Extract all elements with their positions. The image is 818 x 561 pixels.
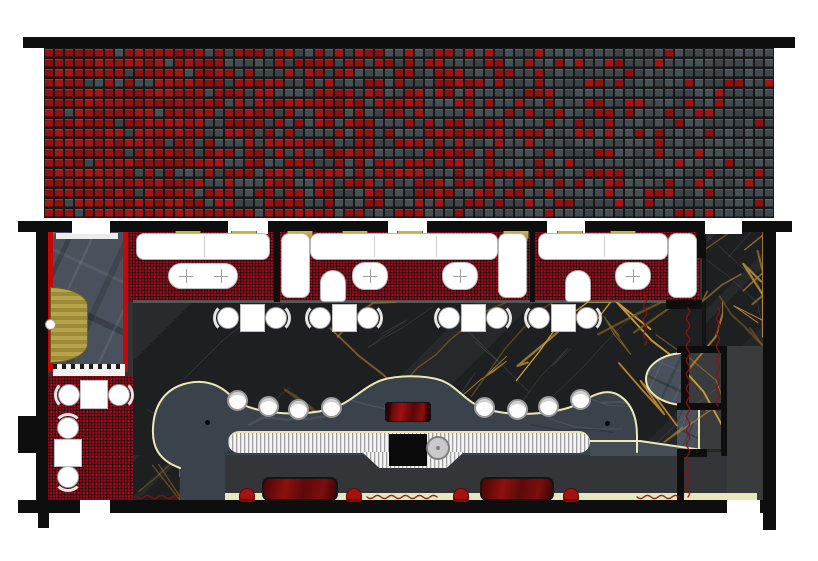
mosaic-tile (405, 79, 413, 87)
mosaic-tile (185, 79, 193, 87)
mosaic-tile (235, 119, 243, 127)
mosaic-tile (385, 49, 393, 57)
mosaic-tile (575, 139, 583, 147)
mosaic-tile (325, 159, 333, 167)
mosaic-tile (65, 109, 73, 117)
mosaic-tile (625, 139, 633, 147)
mosaic-tile (155, 129, 163, 137)
mosaic-tile (635, 159, 643, 167)
mosaic-tile (305, 159, 313, 167)
mosaic-tile (145, 109, 153, 117)
mosaic-tile (405, 179, 413, 187)
mosaic-tile (275, 59, 283, 67)
mosaic-tile (745, 209, 753, 217)
mosaic-tile (385, 119, 393, 127)
dining-chair (486, 307, 508, 329)
mosaic-tile (65, 209, 73, 217)
mosaic-tile (135, 59, 143, 67)
mosaic-tile (525, 119, 533, 127)
dining-table (332, 304, 357, 332)
mosaic-tile (635, 69, 643, 77)
mosaic-tile (505, 189, 513, 197)
mosaic-tile (645, 119, 653, 127)
mosaic-tile (635, 49, 643, 57)
mosaic-tile (545, 199, 553, 207)
bottom-wall (18, 500, 763, 513)
mosaic-tile (695, 59, 703, 67)
mosaic-tile (445, 139, 453, 147)
mosaic-tile (105, 159, 113, 167)
lounge-bench (480, 477, 554, 501)
dining-chair (528, 307, 550, 329)
dining-table (240, 304, 265, 332)
mosaic-tile (605, 109, 613, 117)
mosaic-tile (195, 139, 203, 147)
mosaic-tile (725, 209, 733, 217)
mosaic-tile (285, 89, 293, 97)
door-opening-top (705, 219, 742, 234)
mosaic-tile (315, 49, 323, 57)
mosaic-tile (345, 69, 353, 77)
mosaic-tile (175, 49, 183, 57)
mosaic-tile (665, 139, 673, 147)
mosaic-tile (555, 59, 563, 67)
mosaic-tile (645, 129, 653, 137)
mosaic-tile (505, 199, 513, 207)
mosaic-tile (275, 49, 283, 57)
mosaic-tile (765, 99, 773, 107)
mosaic-tile (125, 159, 133, 167)
mosaic-tile (465, 189, 473, 197)
mosaic-tile (515, 169, 523, 177)
mosaic-tile (565, 139, 573, 147)
mosaic-tile (615, 69, 623, 77)
mosaic-tile (595, 179, 603, 187)
lounge-bench (262, 477, 338, 501)
mosaic-tile (445, 109, 453, 117)
mosaic-tile (685, 149, 693, 157)
mosaic-tile (665, 129, 673, 137)
mosaic-tile (485, 179, 493, 187)
mosaic-tile (715, 169, 723, 177)
mosaic-tile (155, 149, 163, 157)
mosaic-tile (615, 129, 623, 137)
mosaic-tile (615, 109, 623, 117)
mosaic-tile (235, 89, 243, 97)
mosaic-tile (555, 159, 563, 167)
mosaic-tile (145, 179, 153, 187)
mosaic-tile (245, 89, 253, 97)
mosaic-tile (485, 79, 493, 87)
mosaic-tile (225, 199, 233, 207)
mosaic-tile (255, 139, 263, 147)
mosaic-tile (335, 79, 343, 87)
mosaic-tile (205, 79, 213, 87)
mosaic-tile (515, 209, 523, 217)
mosaic-tile (385, 159, 393, 167)
mosaic-tile (115, 59, 123, 67)
mosaic-tile (185, 109, 193, 117)
mosaic-tile (225, 49, 233, 57)
mosaic-tile (525, 169, 533, 177)
mosaic-tile (605, 79, 613, 87)
mosaic-tile (595, 129, 603, 137)
mosaic-tile (165, 199, 173, 207)
mosaic-tile (765, 49, 773, 57)
mosaic-tile (605, 159, 613, 167)
mosaic-tile (505, 209, 513, 217)
mosaic-tile (385, 189, 393, 197)
mosaic-tile (105, 59, 113, 67)
mosaic-tile (735, 59, 743, 67)
mosaic-tile (555, 149, 563, 157)
mosaic-tile (65, 89, 73, 97)
mosaic-tile (765, 89, 773, 97)
mosaic-tile (465, 119, 473, 127)
mosaic-tile (175, 129, 183, 137)
mosaic-tile (275, 119, 283, 127)
mosaic-tile (685, 199, 693, 207)
mosaic-tile (175, 69, 183, 77)
mosaic-tile (115, 149, 123, 157)
mosaic-tile (45, 139, 53, 147)
mosaic-tile (115, 139, 123, 147)
mosaic-tile (475, 159, 483, 167)
mosaic-tile (345, 149, 353, 157)
mosaic-tile (745, 59, 753, 67)
mosaic-tile (135, 109, 143, 117)
mosaic-tile (425, 89, 433, 97)
mosaic-tile (465, 199, 473, 207)
mosaic-tile (525, 59, 533, 67)
mosaic-tile (95, 109, 103, 117)
mosaic-tile (665, 149, 673, 157)
mosaic-tile (295, 179, 303, 187)
floor-plan (0, 0, 818, 561)
mosaic-tile (505, 159, 513, 167)
mosaic-tile (485, 89, 493, 97)
mosaic-tile (485, 189, 493, 197)
mosaic-tile (515, 119, 523, 127)
mosaic-tile (145, 199, 153, 207)
mosaic-tile (285, 179, 293, 187)
mosaic-tile (685, 139, 693, 147)
mosaic-tile (105, 149, 113, 157)
mosaic-tile (365, 199, 373, 207)
mosaic-tile (45, 159, 53, 167)
mosaic-tile (465, 209, 473, 217)
mosaic-tile (725, 59, 733, 67)
mosaic-tile (375, 179, 383, 187)
mosaic-tile (405, 129, 413, 137)
mosaic-tile (85, 49, 93, 57)
mosaic-tile (245, 49, 253, 57)
mosaic-tile (615, 99, 623, 107)
door-opening-top (72, 219, 110, 234)
mosaic-tile (315, 129, 323, 137)
mosaic-tile (635, 169, 643, 177)
mosaic-tile (735, 199, 743, 207)
mosaic-tile (565, 149, 573, 157)
mosaic-tile (515, 109, 523, 117)
mosaic-tile (285, 149, 293, 157)
mosaic-tile (75, 139, 83, 147)
mosaic-tile (315, 59, 323, 67)
mosaic-tile (595, 99, 603, 107)
mosaic-tile (495, 209, 503, 217)
mosaic-tile (465, 69, 473, 77)
mosaic-tile (435, 79, 443, 87)
mosaic-tile (335, 159, 343, 167)
mosaic-tile (125, 89, 133, 97)
mosaic-tile (285, 99, 293, 107)
mosaic-tile (45, 149, 53, 157)
mosaic-tile (395, 189, 403, 197)
mosaic-tile (245, 209, 253, 217)
mosaic-tile (125, 179, 133, 187)
mosaic-tile (45, 109, 53, 117)
mosaic-tile (725, 89, 733, 97)
mosaic-tile (545, 59, 553, 67)
mosaic-tile (665, 69, 673, 77)
mosaic-tile (435, 119, 443, 127)
mosaic-tile (475, 69, 483, 77)
mosaic-tile (215, 129, 223, 137)
mosaic-tile (185, 49, 193, 57)
mosaic-tile (495, 59, 503, 67)
mosaic-tile (255, 109, 263, 117)
door-opening-bottom (80, 500, 110, 514)
mosaic-tile (615, 179, 623, 187)
mosaic-tile (445, 79, 453, 87)
mosaic-tile (505, 109, 513, 117)
mosaic-tile (655, 119, 663, 127)
mosaic-tile (185, 99, 193, 107)
mosaic-tile (735, 159, 743, 167)
alcove-left-wall (681, 349, 689, 406)
mosaic-tile (575, 49, 583, 57)
mosaic-tile (245, 169, 253, 177)
mosaic-tile (455, 69, 463, 77)
mosaic-tile (595, 189, 603, 197)
alcove-2-floor (700, 410, 721, 449)
mosaic-tile (105, 69, 113, 77)
mosaic-tile (125, 169, 133, 177)
mosaic-tile (395, 49, 403, 57)
mosaic-tile (595, 59, 603, 67)
mosaic-tile (685, 129, 693, 137)
mosaic-tile (535, 209, 543, 217)
mosaic-tile (255, 199, 263, 207)
mosaic-tile (755, 199, 763, 207)
mosaic-tile (115, 49, 123, 57)
mosaic-tile (555, 119, 563, 127)
mosaic-tile (755, 169, 763, 177)
mosaic-tile (105, 129, 113, 137)
mosaic-tile (335, 59, 343, 67)
mosaic-tile (135, 69, 143, 77)
mosaic-tile (535, 119, 543, 127)
mosaic-tile (675, 189, 683, 197)
mosaic-tile (585, 99, 593, 107)
mosaic-tile (125, 109, 133, 117)
mosaic-tile (65, 129, 73, 137)
mosaic-tile (505, 149, 513, 157)
mosaic-tile (715, 49, 723, 57)
mosaic-tile (675, 69, 683, 77)
mosaic-tile (485, 59, 493, 67)
mosaic-tile (185, 189, 193, 197)
mosaic-tile (325, 129, 333, 137)
mosaic-tile (45, 69, 53, 77)
mosaic-tile (55, 209, 63, 217)
mosaic-tile (105, 189, 113, 197)
mosaic-tile (585, 149, 593, 157)
mosaic-tile (195, 209, 203, 217)
mosaic-tile (215, 49, 223, 57)
mosaic-tile (325, 169, 333, 177)
sofa-cushion-divider (204, 236, 205, 257)
mosaic-tile (725, 49, 733, 57)
booth-arch-chair (320, 270, 346, 302)
mosaic-tile (365, 59, 373, 67)
mosaic-tile (345, 209, 353, 217)
mosaic-tile (55, 79, 63, 87)
mosaic-tile (525, 199, 533, 207)
mosaic-tile (205, 109, 213, 117)
mosaic-tile (115, 79, 123, 87)
mosaic-tile (255, 79, 263, 87)
mosaic-tile (175, 199, 183, 207)
mosaic-tile (685, 169, 693, 177)
mosaic-tile (395, 169, 403, 177)
mosaic-tile (715, 179, 723, 187)
mosaic-tile (395, 129, 403, 137)
mosaic-tile (685, 179, 693, 187)
mosaic-tile (195, 109, 203, 117)
mosaic-tile (245, 199, 253, 207)
mosaic-tile (265, 209, 273, 217)
mosaic-tile (575, 89, 583, 97)
mosaic-tile (635, 59, 643, 67)
mosaic-tile (765, 119, 773, 127)
mosaic-tile (545, 159, 553, 167)
mosaic-tile (225, 159, 233, 167)
mosaic-tile (375, 69, 383, 77)
mosaic-tile (255, 209, 263, 217)
mosaic-tile (555, 129, 563, 137)
mosaic-tile (655, 109, 663, 117)
mosaic-tile (505, 99, 513, 107)
mosaic-tile (435, 199, 443, 207)
mosaic-tile (605, 89, 613, 97)
mosaic-tile (235, 139, 243, 147)
mosaic-tile (755, 69, 763, 77)
mosaic-tile (125, 149, 133, 157)
mosaic-tile (745, 169, 753, 177)
mosaic-tile (565, 189, 573, 197)
mosaic-tile (165, 99, 173, 107)
mosaic-tile (545, 119, 553, 127)
mosaic-tile (135, 209, 143, 217)
mosaic-tile (755, 209, 763, 217)
mosaic-tile (45, 199, 53, 207)
mosaic-tile (425, 49, 433, 57)
mosaic-tile (245, 149, 253, 157)
mosaic-tile (465, 89, 473, 97)
mosaic-tile (295, 109, 303, 117)
mosaic-tile (595, 159, 603, 167)
mosaic-tile (145, 49, 153, 57)
mosaic-tile (695, 79, 703, 87)
booth-sofa (310, 233, 498, 260)
mosaic-tile (115, 99, 123, 107)
mosaic-tile (405, 119, 413, 127)
mosaic-tile (555, 49, 563, 57)
mosaic-tile (445, 179, 453, 187)
mosaic-tile (325, 99, 333, 107)
mosaic-tile (55, 199, 63, 207)
mosaic-tile (185, 129, 193, 137)
mosaic-tile (155, 79, 163, 87)
mosaic-tile (45, 119, 53, 127)
mosaic-tile (85, 209, 93, 217)
mosaic-tile (125, 199, 133, 207)
mosaic-tile (575, 59, 583, 67)
mosaic-tile (165, 49, 173, 57)
mosaic-tile (495, 69, 503, 77)
mosaic-tile (175, 99, 183, 107)
mosaic-tile (495, 109, 503, 117)
mosaic-tile (165, 149, 173, 157)
mosaic-tile (435, 49, 443, 57)
mosaic-tile (715, 119, 723, 127)
mosaic-tile (335, 119, 343, 127)
mosaic-tile (365, 169, 373, 177)
mosaic-tile (235, 209, 243, 217)
mosaic-tile (405, 99, 413, 107)
mosaic-tile (385, 129, 393, 137)
mosaic-tile (305, 119, 313, 127)
mosaic-tile (255, 129, 263, 137)
mosaic-tile (425, 179, 433, 187)
mosaic-tile (165, 189, 173, 197)
mosaic-tile (525, 99, 533, 107)
mosaic-tile (415, 169, 423, 177)
mosaic-tile (105, 169, 113, 177)
mosaic-tile (295, 169, 303, 177)
mosaic-tile (285, 129, 293, 137)
mosaic-tile (105, 49, 113, 57)
mosaic-tile (595, 89, 603, 97)
mosaic-tile (705, 159, 713, 167)
mosaic-tile (485, 159, 493, 167)
mosaic-tile (335, 209, 343, 217)
mosaic-tile (215, 69, 223, 77)
mosaic-tile (535, 49, 543, 57)
mosaic-tile (185, 199, 193, 207)
mosaic-tile (415, 119, 423, 127)
side-room-chair (108, 384, 130, 406)
mosaic-tile (705, 69, 713, 77)
mosaic-tile (115, 69, 123, 77)
right-wall (763, 227, 776, 530)
mosaic-tile (655, 129, 663, 137)
mosaic-tile (215, 149, 223, 157)
mosaic-tile (475, 59, 483, 67)
mosaic-tile (535, 129, 543, 137)
mosaic-tile (535, 109, 543, 117)
